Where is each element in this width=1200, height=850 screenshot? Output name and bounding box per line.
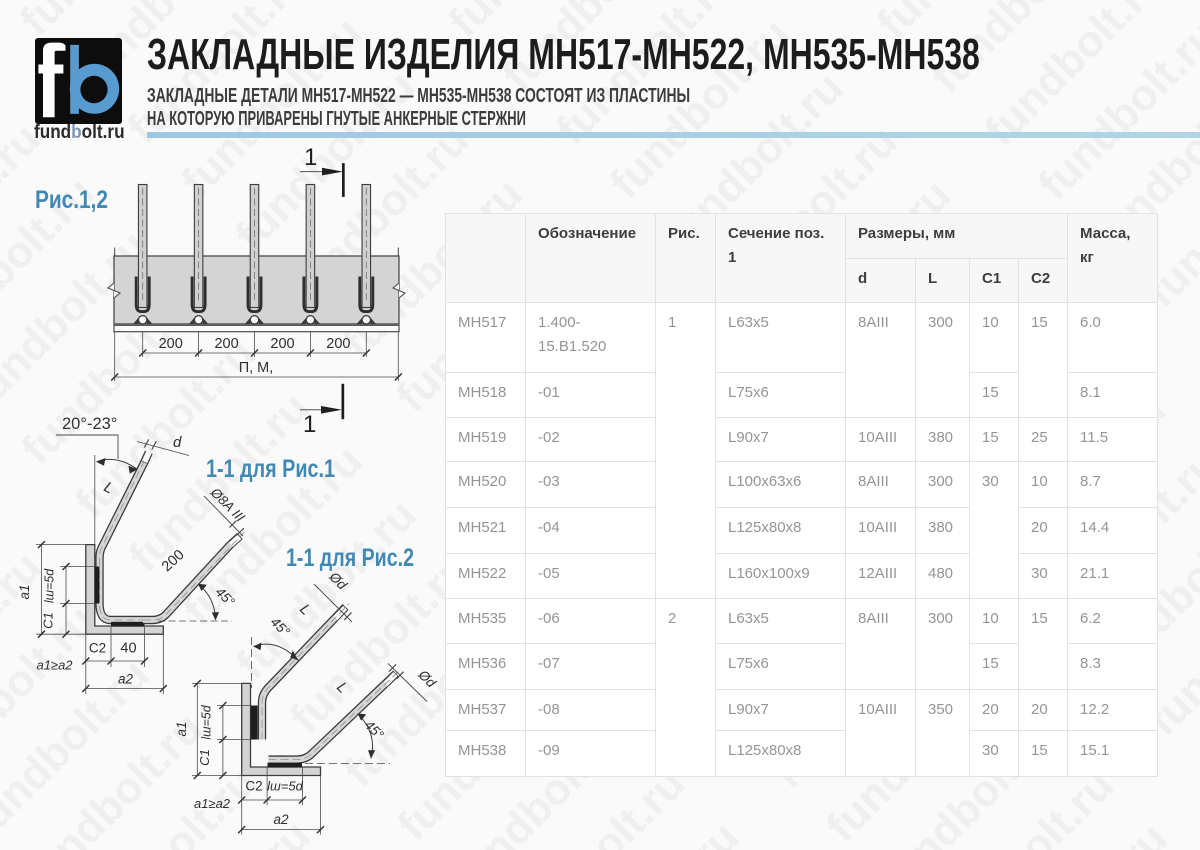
svg-text:20°-23°: 20°-23° xyxy=(62,415,117,433)
svg-text:40: 40 xyxy=(120,641,136,657)
svg-text:a2: a2 xyxy=(118,672,134,687)
svg-text:L: L xyxy=(296,601,314,619)
svg-text:1-1 для Рис.1: 1-1 для Рис.1 xyxy=(206,455,335,483)
svg-text:Ø8A III: Ø8A III xyxy=(207,484,248,525)
svg-text:C1: C1 xyxy=(41,612,56,629)
svg-text:П, М,: П, М, xyxy=(239,360,274,376)
svg-text:45°: 45° xyxy=(268,614,293,639)
svg-text:d: d xyxy=(173,434,182,451)
svg-text:L: L xyxy=(101,479,116,498)
svg-text:45°: 45° xyxy=(213,584,238,609)
svg-text:Ød: Ød xyxy=(326,568,350,592)
svg-text:C1: C1 xyxy=(197,749,212,766)
svg-text:a1: a1 xyxy=(17,584,32,599)
svg-text:45°: 45° xyxy=(362,717,387,742)
svg-text:200: 200 xyxy=(270,336,294,352)
svg-text:C2: C2 xyxy=(89,641,106,656)
svg-text:200: 200 xyxy=(159,336,183,352)
svg-text:lш=5d: lш=5d xyxy=(267,779,304,794)
svg-text:200: 200 xyxy=(326,336,350,352)
svg-text:Ød: Ød xyxy=(415,666,439,690)
svg-text:a1: a1 xyxy=(174,721,189,736)
svg-text:lш=5d: lш=5d xyxy=(200,704,214,739)
svg-text:1: 1 xyxy=(303,411,316,438)
svg-text:200: 200 xyxy=(214,336,238,352)
svg-text:200: 200 xyxy=(159,547,188,575)
svg-text:lш=5d: lш=5d xyxy=(43,568,57,603)
svg-text:L: L xyxy=(333,679,351,697)
svg-text:1-1 для Рис.2: 1-1 для Рис.2 xyxy=(286,544,414,572)
svg-text:1: 1 xyxy=(304,144,317,171)
svg-text:C2: C2 xyxy=(245,779,262,794)
svg-text:a2: a2 xyxy=(273,812,289,827)
svg-text:Рис.1,2: Рис.1,2 xyxy=(35,186,108,214)
svg-text:a1≥a2: a1≥a2 xyxy=(36,658,73,673)
svg-text:a1≥a2: a1≥a2 xyxy=(194,796,231,811)
